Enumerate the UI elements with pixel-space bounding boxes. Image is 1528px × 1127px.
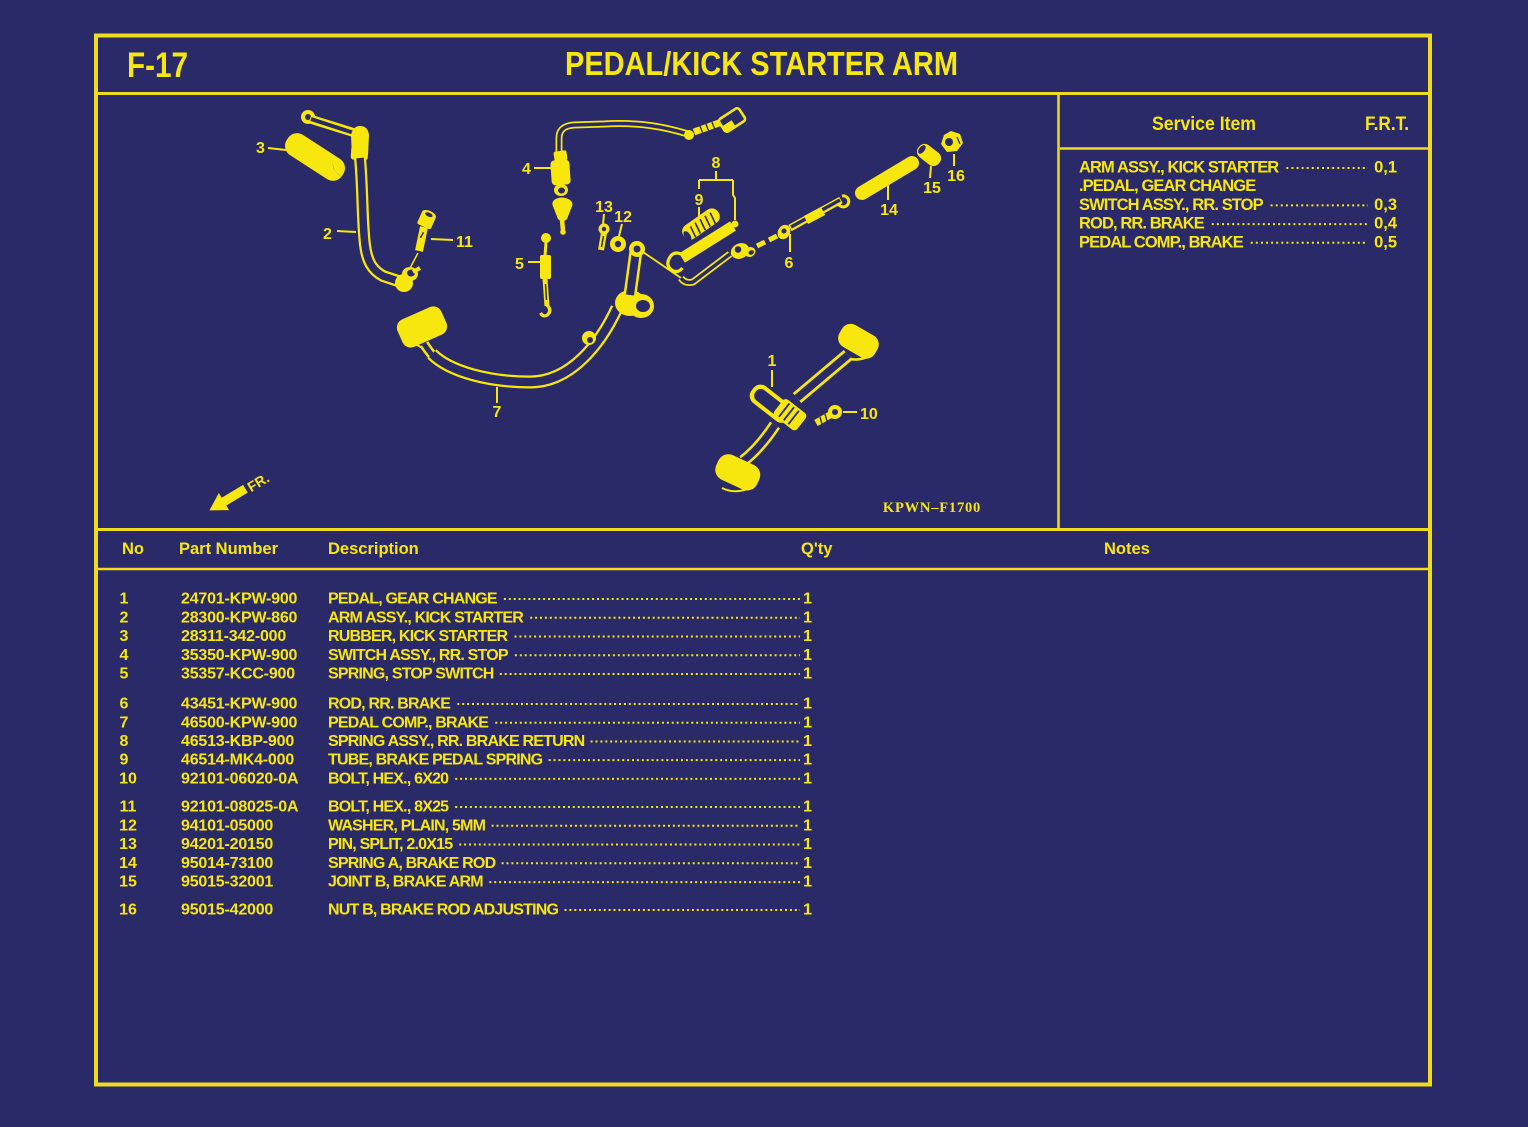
svg-text:1: 1 — [120, 591, 129, 608]
svg-text:Q'ty: Q'ty — [801, 540, 833, 558]
svg-text:Service Item: Service Item — [1152, 114, 1256, 135]
svg-text:2: 2 — [323, 226, 332, 243]
svg-text:0,1: 0,1 — [1374, 159, 1397, 177]
svg-text:1: 1 — [803, 752, 812, 769]
svg-text:94201-20150: 94201-20150 — [181, 836, 273, 853]
svg-text:PEDAL/KICK STARTER ARM: PEDAL/KICK STARTER ARM — [565, 45, 958, 82]
svg-text:0,3: 0,3 — [1374, 196, 1397, 214]
svg-text:95015-32001: 95015-32001 — [181, 874, 273, 891]
svg-text:24701-KPW-900: 24701-KPW-900 — [181, 591, 298, 608]
svg-text:PIN, SPLIT, 2.0X15: PIN, SPLIT, 2.0X15 — [328, 836, 453, 853]
svg-text:.PEDAL, GEAR CHANGE: .PEDAL, GEAR CHANGE — [1079, 177, 1256, 195]
svg-text:15: 15 — [923, 180, 941, 197]
svg-text:92101-06020-0A: 92101-06020-0A — [181, 770, 299, 787]
svg-text:35350-KPW-900: 35350-KPW-900 — [181, 647, 298, 664]
svg-text:1: 1 — [803, 770, 812, 787]
svg-text:RUBBER, KICK STARTER: RUBBER, KICK STARTER — [328, 628, 509, 645]
svg-text:1: 1 — [803, 902, 812, 919]
svg-text:WASHER, PLAIN, 5MM: WASHER, PLAIN, 5MM — [328, 817, 486, 834]
svg-text:92101-08025-0A: 92101-08025-0A — [181, 799, 299, 816]
svg-text:0,5: 0,5 — [1374, 233, 1397, 251]
svg-text:7: 7 — [120, 714, 129, 731]
svg-text:15: 15 — [119, 874, 137, 891]
svg-text:16: 16 — [119, 902, 137, 919]
svg-text:5: 5 — [120, 666, 129, 683]
svg-text:KPWN–F1700: KPWN–F1700 — [883, 500, 981, 516]
svg-text:1: 1 — [803, 855, 812, 872]
svg-text:94101-05000: 94101-05000 — [181, 817, 273, 834]
svg-text:1: 1 — [803, 696, 812, 713]
svg-text:1: 1 — [803, 874, 812, 891]
svg-text:Part Number: Part Number — [179, 540, 279, 558]
svg-text:SPRING, STOP SWITCH: SPRING, STOP SWITCH — [328, 666, 494, 683]
svg-text:1: 1 — [803, 733, 812, 750]
svg-text:1: 1 — [768, 353, 777, 370]
svg-text:BOLT, HEX., 6X20: BOLT, HEX., 6X20 — [328, 770, 449, 787]
svg-text:Notes: Notes — [1104, 540, 1150, 558]
svg-text:12: 12 — [614, 209, 632, 226]
svg-text:1: 1 — [803, 609, 812, 626]
svg-text:SWITCH ASSY., RR. STOP: SWITCH ASSY., RR. STOP — [328, 647, 509, 664]
svg-text:11: 11 — [456, 234, 473, 251]
svg-text:JOINT B, BRAKE ARM: JOINT B, BRAKE ARM — [328, 874, 483, 891]
svg-text:95014-73100: 95014-73100 — [181, 855, 273, 872]
svg-text:TUBE, BRAKE PEDAL SPRING: TUBE, BRAKE PEDAL SPRING — [328, 752, 543, 769]
svg-text:35357-KCC-900: 35357-KCC-900 — [181, 666, 295, 683]
svg-text:28300-KPW-860: 28300-KPW-860 — [181, 609, 298, 626]
svg-text:F.R.T.: F.R.T. — [1365, 114, 1409, 135]
svg-text:13: 13 — [595, 199, 613, 216]
svg-text:5: 5 — [515, 256, 524, 273]
svg-text:ROD, RR. BRAKE: ROD, RR. BRAKE — [1079, 215, 1205, 233]
svg-text:1: 1 — [803, 628, 812, 645]
svg-text:12: 12 — [119, 817, 137, 834]
svg-text:No: No — [122, 540, 144, 558]
svg-text:PEDAL COMP., BRAKE: PEDAL COMP., BRAKE — [1079, 233, 1244, 251]
svg-text:NUT B, BRAKE ROD ADJUSTING: NUT B, BRAKE ROD ADJUSTING — [328, 902, 559, 919]
svg-text:14: 14 — [119, 855, 137, 872]
svg-text:1: 1 — [803, 836, 812, 853]
svg-text:ARM ASSY., KICK STARTER: ARM ASSY., KICK STARTER — [328, 609, 524, 626]
svg-text:1: 1 — [803, 799, 812, 816]
svg-text:46514-MK4-000: 46514-MK4-000 — [181, 752, 294, 769]
svg-text:4: 4 — [522, 161, 531, 178]
svg-text:SPRING ASSY., RR. BRAKE RETURN: SPRING ASSY., RR. BRAKE RETURN — [328, 733, 585, 750]
svg-text:11: 11 — [120, 799, 137, 816]
svg-text:1: 1 — [803, 817, 812, 834]
svg-text:0,4: 0,4 — [1374, 215, 1398, 233]
svg-text:ROD, RR. BRAKE: ROD, RR. BRAKE — [328, 696, 451, 713]
svg-text:9: 9 — [695, 192, 704, 209]
svg-text:Description: Description — [328, 540, 419, 558]
svg-text:10: 10 — [860, 406, 878, 423]
svg-text:6: 6 — [120, 696, 129, 713]
svg-text:PEDAL COMP., BRAKE: PEDAL COMP., BRAKE — [328, 714, 489, 731]
svg-text:10: 10 — [119, 770, 137, 787]
svg-text:6: 6 — [785, 255, 794, 272]
svg-text:13: 13 — [119, 836, 137, 853]
svg-text:SWITCH ASSY., RR. STOP: SWITCH ASSY., RR. STOP — [1079, 196, 1264, 214]
svg-text:2: 2 — [120, 609, 129, 626]
svg-text:1: 1 — [803, 591, 812, 608]
svg-text:3: 3 — [120, 628, 129, 645]
svg-text:28311-342-000: 28311-342-000 — [181, 628, 286, 645]
svg-text:3: 3 — [256, 140, 265, 157]
svg-text:43451-KPW-900: 43451-KPW-900 — [181, 696, 298, 713]
svg-text:1: 1 — [803, 647, 812, 664]
svg-text:SPRING A, BRAKE ROD: SPRING A, BRAKE ROD — [328, 855, 496, 872]
svg-text:14: 14 — [880, 202, 898, 219]
svg-text:ARM ASSY., KICK STARTER: ARM ASSY., KICK STARTER — [1079, 159, 1279, 177]
svg-text:PEDAL, GEAR CHANGE: PEDAL, GEAR CHANGE — [328, 591, 498, 608]
svg-text:BOLT, HEX., 8X25: BOLT, HEX., 8X25 — [328, 799, 449, 816]
svg-text:1: 1 — [803, 666, 812, 683]
svg-text:46513-KBP-900: 46513-KBP-900 — [181, 733, 294, 750]
svg-text:8: 8 — [120, 733, 129, 750]
svg-text:9: 9 — [120, 752, 129, 769]
svg-text:7: 7 — [493, 404, 502, 421]
svg-text:4: 4 — [120, 647, 129, 664]
svg-text:16: 16 — [947, 168, 965, 185]
svg-text:8: 8 — [712, 155, 721, 172]
svg-text:1: 1 — [803, 714, 812, 731]
svg-text:46500-KPW-900: 46500-KPW-900 — [181, 714, 298, 731]
svg-text:95015-42000: 95015-42000 — [181, 902, 273, 919]
svg-text:F-17: F-17 — [127, 46, 188, 85]
